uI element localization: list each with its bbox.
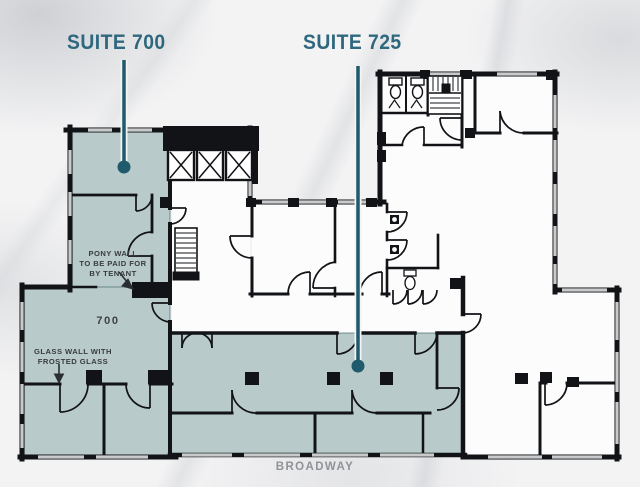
floor-plan-drawing <box>0 0 640 487</box>
suite-700-leader-dot <box>118 161 131 174</box>
floor-plan-page: { "suites": { "suite700": { "label": "SU… <box>0 0 640 487</box>
pony-wall-note: PONY WALL TO BE PAID FOR BY TENANT <box>67 249 159 279</box>
toilet-tank <box>411 78 424 85</box>
toilet-bowl <box>413 86 423 99</box>
toilet-bowl <box>391 86 401 99</box>
room-700-label: 700 <box>88 315 128 327</box>
pony-wall <box>132 282 172 298</box>
suite-700-label: SUITE 700 <box>67 31 166 55</box>
broadway-label: BROADWAY <box>265 461 365 473</box>
glass-wall-note: GLASS WALL WITH FROSTED GLASS <box>27 347 119 367</box>
core-stairwell <box>173 228 199 280</box>
suite-725-leader-dot <box>352 360 365 373</box>
elevator-bank <box>163 126 259 184</box>
suite-725-stairwell <box>428 76 462 114</box>
suite-725-label: SUITE 725 <box>303 31 402 55</box>
toilet-tank <box>389 78 402 85</box>
